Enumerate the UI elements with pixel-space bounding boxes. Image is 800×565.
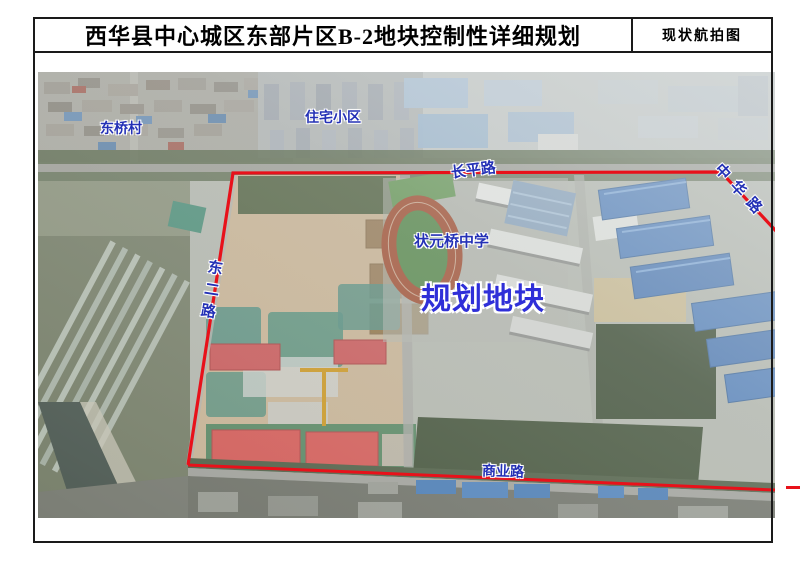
plan-sheet: 西华县中心城区东部片区B-2地块控制性详细规划 现状航拍图 <box>0 0 800 565</box>
page-border <box>33 17 773 543</box>
boundary-dash-outside <box>786 486 800 489</box>
